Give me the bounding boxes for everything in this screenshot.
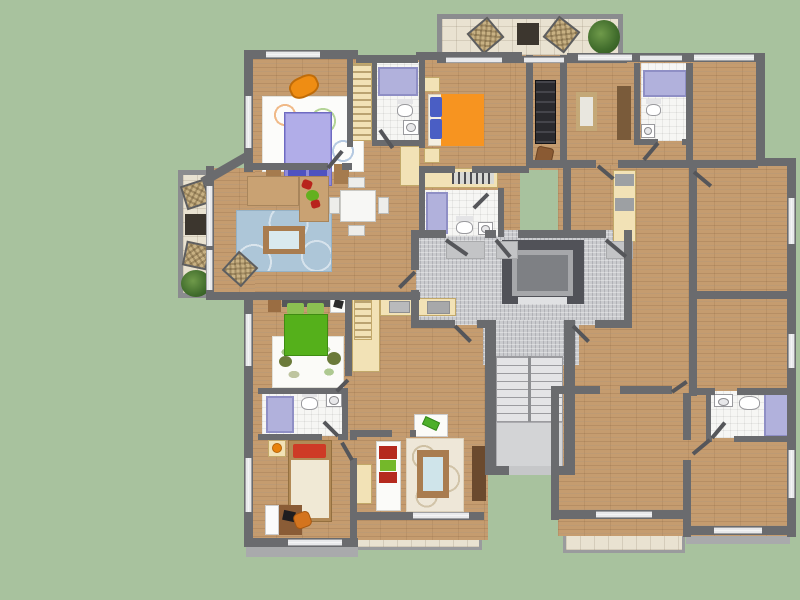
wall-south-living [206,292,420,300]
wall-closet-bath1 [372,58,377,146]
stair-south-wall-a [485,466,509,475]
wall-bathne-west [634,63,640,145]
bed-orange-pillow-bottom [430,119,442,139]
bath-1-tub [378,67,418,96]
wall-south-bedroom2-a [419,166,455,173]
sidewalk-south-right [686,535,790,544]
balcony-left-table [185,214,206,235]
bed-green-pillow-left [287,303,304,314]
balcony-top-table [517,23,539,45]
window-east-1 [788,198,795,244]
wall-south-bedroom1-a [244,163,328,170]
coffee-table-b-top [423,457,443,491]
wall-west-bathse [706,391,711,438]
wall-south-bathb-a [258,434,322,440]
bath-b-shower [266,396,294,433]
elevator-door-opening [518,297,567,304]
stair-exit-opening [509,466,551,475]
bath-se-sink [714,394,733,407]
wall-rw-sdiv-a [683,393,691,440]
bath-ne-tub [643,70,687,97]
bath-b-sink [326,393,342,407]
cushion-green [380,460,396,471]
wall-hall-east [624,230,632,325]
wall-greenroom-east [345,292,352,376]
kitchen-b-sink [389,301,410,313]
plant-pot-right [327,352,341,365]
plant-pot-left [279,356,292,367]
bed-double-purple-blanket [286,114,330,166]
window-ne-north-1 [578,54,632,61]
cushion-red-bottom [379,472,397,483]
bath-se-toilet [739,396,760,410]
wall-hall-north-c [518,230,606,238]
wall-mid-rw-v [563,165,571,238]
wall-north-bathse-a [695,388,715,395]
wall-south-mid-a [526,160,596,168]
window-kidroom-south [288,539,342,546]
desk-kid-white [265,505,279,535]
window-ne-bath-north [640,55,682,61]
window-living-west-2 [206,250,213,290]
wall-bathne-east [686,63,693,166]
wall-south-bedroom2-b [472,166,529,173]
wall-south-bathne-b [682,139,692,145]
wall-bedroom2-mid [526,55,533,168]
window-rw-south-1 [596,511,652,518]
bed-orange-blanket [441,94,484,146]
mirror-glass [580,97,593,126]
window-living-west-1 [206,186,213,246]
kitchen-b-stove [427,301,450,314]
nightstand-green [268,299,281,312]
lamp-orange [272,443,282,453]
coat-rack [452,172,494,184]
wall-mid-ne [560,55,567,168]
window-bedroom1-west [245,96,252,148]
wall-south-bathb-b [338,434,348,440]
stairs-flight-left [496,356,529,422]
bath-ne-toilet [646,104,661,116]
elevator-cab-inner [517,255,568,291]
window-east-3 [788,450,795,498]
stair-rail-east [564,320,575,472]
bed-green-pillow-right [307,303,324,314]
window-bedroom1-north [266,51,320,58]
cabinet-ne-room [617,86,631,140]
window-bliving-south [413,512,469,519]
wall-bedroom1-closet [347,55,353,147]
wall-rw-south-h-b [620,386,672,394]
wall-bath2-west [419,173,425,237]
wall-bath2-east [498,188,504,237]
stairs-divider [528,356,531,422]
window-rw-south-2 [714,527,762,534]
wall-bath1-bedroom2 [419,55,425,148]
wall-rw-center-v [689,168,697,396]
bath-ne-sink [641,124,655,138]
kitchen-b-pantry [354,300,372,340]
nightstand-orange-top [424,77,440,92]
dining-chair-west [329,197,340,214]
cushion-red-top [379,446,397,459]
wall-north-bliving-a [350,430,392,437]
bath-2-toilet [456,221,473,234]
wardrobe-bedroom-1 [352,63,372,141]
window-east-2 [788,334,795,368]
dining-chair-east [378,197,389,214]
cabinet-entry-a [400,146,420,186]
window-greenroom-west [245,314,252,366]
kitchen-ne-stove [615,174,634,186]
wall-south-bathse-b [734,436,796,442]
dining-table [340,190,376,222]
wall-rw-lower-west [551,393,559,520]
dining-chair-north [348,177,365,188]
window-balcony-door-1 [446,57,502,63]
bath-b-toilet [301,397,318,410]
stair-rail-west [485,320,496,472]
bath-1-sink [403,120,419,135]
wall-north-bliving-b [410,430,416,437]
wall-east-step-v [756,53,765,165]
bath-2-shower [426,192,448,234]
wall-kid-east-b [350,458,357,540]
wall-hall-north-b [485,230,496,238]
wall-rw-east-h [689,291,796,299]
wall-south-mid-b [618,160,632,168]
sidewalk-south-left [246,547,358,557]
wall-north-bathse-b [737,388,796,395]
sofa-tan-main [247,176,299,206]
wardrobe-black [535,80,556,144]
wall-south-bath1 [372,140,424,146]
balcony-top-plant [588,20,620,54]
wall-east-bathb [342,392,348,438]
window-balcony-door-2 [524,57,564,63]
wall-hall-se-b [595,320,632,328]
wall-hall-south-a [411,320,455,328]
nightstand-orange-bottom [424,148,440,163]
wall-south-bedroom1-b [342,163,352,170]
wall-south-ne-top [632,160,758,168]
bath-1-toilet [397,104,413,117]
window-ne-north-2 [694,54,754,61]
bed-kid-pillow [293,444,326,458]
sideboard-b [472,446,486,501]
bed-green-blanket [284,314,328,356]
wall-north-2 [356,55,418,63]
dining-chair-south [348,225,365,236]
window-kidroom-west [245,458,252,512]
floor-plan [0,0,800,600]
bed-orange-pillow-top [430,97,442,117]
wall-hall-west-a [411,230,419,270]
kitchen-ne-sink [615,198,634,211]
floor-right-wing [558,165,796,536]
coffee-table-a-top [269,231,299,249]
